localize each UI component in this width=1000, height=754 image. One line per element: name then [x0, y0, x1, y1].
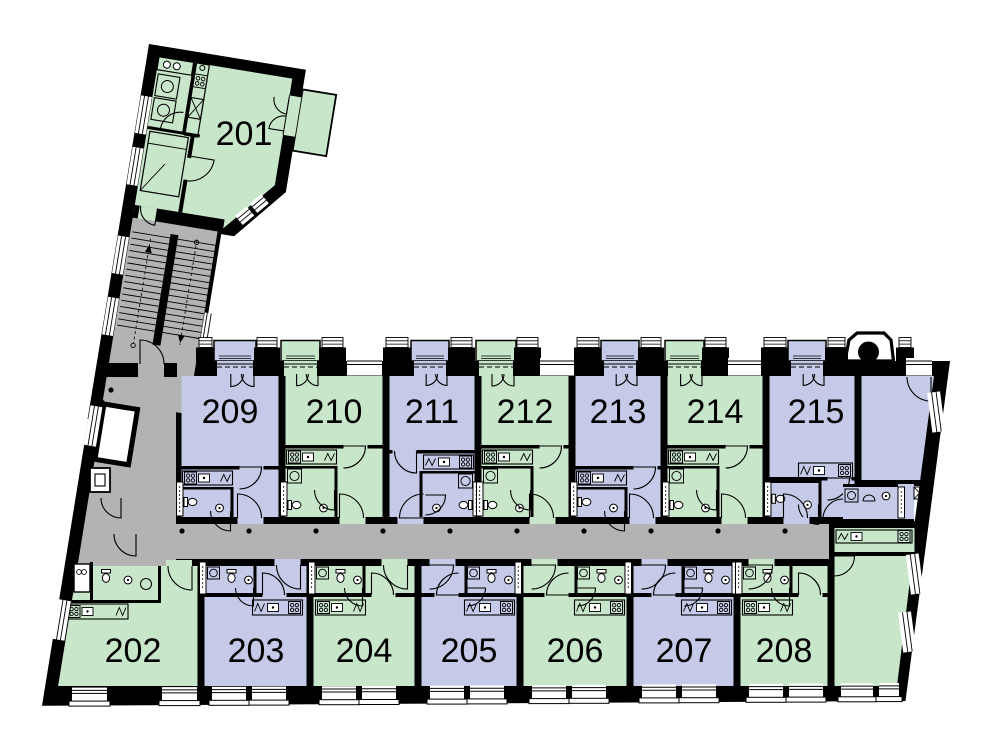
- svg-text:212: 212: [497, 393, 554, 431]
- svg-text:214: 214: [687, 393, 744, 431]
- svg-text:208: 208: [756, 632, 813, 670]
- svg-text:201: 201: [216, 115, 273, 153]
- svg-text:211: 211: [405, 393, 459, 431]
- svg-text:205: 205: [441, 632, 498, 670]
- svg-text:210: 210: [306, 393, 363, 431]
- svg-text:204: 204: [336, 632, 393, 670]
- svg-text:209: 209: [202, 393, 259, 431]
- svg-text:213: 213: [590, 393, 647, 431]
- svg-text:207: 207: [656, 632, 713, 670]
- svg-text:203: 203: [228, 632, 285, 670]
- svg-text:215: 215: [788, 393, 845, 431]
- svg-text:202: 202: [105, 632, 162, 670]
- svg-text:206: 206: [547, 632, 604, 670]
